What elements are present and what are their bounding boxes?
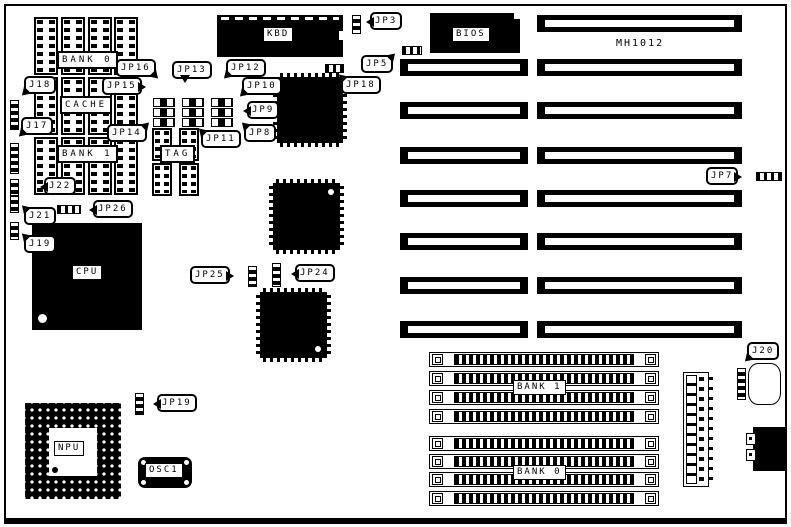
chipset-qfp xyxy=(277,77,343,143)
kbd-chip-notch xyxy=(339,31,343,40)
simm-slot xyxy=(429,409,659,424)
jumper-block xyxy=(182,108,204,117)
dip-chip xyxy=(34,17,58,75)
isa-slot xyxy=(537,277,742,294)
callout-jp7: JP7 xyxy=(706,167,738,185)
bank0-simm-label: BANK 0 xyxy=(513,465,566,480)
isa-slot xyxy=(400,147,528,164)
callout-jp24: JP24 xyxy=(295,264,335,282)
simm-slot xyxy=(429,436,659,451)
isa-slot xyxy=(537,59,742,76)
jp7-connector xyxy=(756,172,782,181)
qfp-pin1-dot xyxy=(328,189,334,195)
bank0-dip-label: BANK 0 xyxy=(57,51,118,69)
cache-label: CACHE xyxy=(60,96,112,114)
callout-j19: J19 xyxy=(24,235,56,253)
j20-connector xyxy=(737,368,746,400)
tag-chip xyxy=(179,163,199,196)
callout-jp9: JP9 xyxy=(247,101,279,119)
callout-jp14: JP14 xyxy=(107,124,147,142)
board-model-text: MH1012 xyxy=(616,38,664,49)
simm-slot xyxy=(429,491,659,506)
isa-slot xyxy=(537,15,742,32)
jumper-block-jp15 xyxy=(153,108,175,117)
callout-jp12: JP12 xyxy=(226,59,266,77)
power-connector xyxy=(683,372,709,487)
cpu-pin1-dot xyxy=(38,314,47,323)
bios-chip-notch xyxy=(514,13,520,19)
isa-slot xyxy=(400,321,528,338)
isa-slot xyxy=(537,233,742,250)
power-socket xyxy=(753,427,786,471)
bios-label: BIOS xyxy=(452,27,490,42)
tag-label: TAG xyxy=(160,145,195,163)
callout-jp18: JP18 xyxy=(341,76,381,94)
callout-jp15: JP15 xyxy=(102,77,142,95)
callout-jp10: JP10 xyxy=(242,77,282,95)
isa-slot xyxy=(537,321,742,338)
callout-jp19: JP19 xyxy=(157,394,197,412)
j22-connector xyxy=(10,179,19,196)
bank1-simm-label: BANK 1 xyxy=(513,380,566,395)
keyboard-din-outline xyxy=(748,363,781,405)
callout-jp26: JP26 xyxy=(93,200,133,218)
callout-jp5: JP5 xyxy=(361,55,393,73)
isa-slot xyxy=(400,190,528,207)
callout-j18: J18 xyxy=(24,76,56,94)
callout-jp8: JP8 xyxy=(244,124,276,142)
jp26-connector xyxy=(57,205,81,214)
j17-connector xyxy=(10,143,19,174)
callout-j17: J17 xyxy=(21,117,53,135)
isa-slot xyxy=(400,233,528,250)
isa-slot xyxy=(537,102,742,119)
kbd-chip-pin-row xyxy=(221,17,339,20)
chipset-qfp xyxy=(273,183,340,250)
tag-chip xyxy=(152,163,172,196)
bank1-dip-label: BANK 1 xyxy=(57,145,118,163)
callout-j22: J22 xyxy=(44,177,76,195)
npu-label: NPU xyxy=(54,441,84,456)
jp5-connector xyxy=(402,46,422,55)
callout-jp13: JP13 xyxy=(172,61,212,79)
isa-slot xyxy=(400,59,528,76)
callout-jp11: JP11 xyxy=(201,130,241,148)
chipset-qfp xyxy=(260,292,327,358)
jp3-connector xyxy=(352,15,361,34)
isa-slot xyxy=(537,147,742,164)
jumper-block-jp9 xyxy=(211,108,233,117)
osc1-label: OSC1 xyxy=(145,463,183,478)
jumper-block-jp16 xyxy=(153,98,175,107)
jumper-block-jp13 xyxy=(182,98,204,107)
callout-j21: J21 xyxy=(24,207,56,225)
j18-connector xyxy=(10,100,19,130)
callout-j20: J20 xyxy=(747,342,779,360)
npu-pin1-dot xyxy=(52,467,58,473)
jp24-connector xyxy=(272,263,281,287)
kbd-label: KBD xyxy=(263,27,293,42)
callout-jp25: JP25 xyxy=(190,266,230,284)
qfp-pin1-dot xyxy=(315,346,321,352)
isa-slot xyxy=(400,102,528,119)
motherboard-diagram: BANK 0 CACHE BANK 1 TAG KBD BIOS MH1012 xyxy=(0,0,791,527)
callout-jp16: JP16 xyxy=(116,59,156,77)
isa-slot xyxy=(537,190,742,207)
cpu-label: CPU xyxy=(72,265,102,280)
jumper-block-jp12 xyxy=(211,98,233,107)
callout-jp3: JP3 xyxy=(370,12,402,30)
simm-slot xyxy=(429,352,659,367)
jp25-connector xyxy=(248,266,257,287)
dip-chip xyxy=(114,137,138,195)
jp19-connector xyxy=(135,393,144,415)
jumper-block-jp14 xyxy=(153,118,175,127)
isa-slot xyxy=(400,277,528,294)
jumper-block-jp8 xyxy=(211,118,233,127)
